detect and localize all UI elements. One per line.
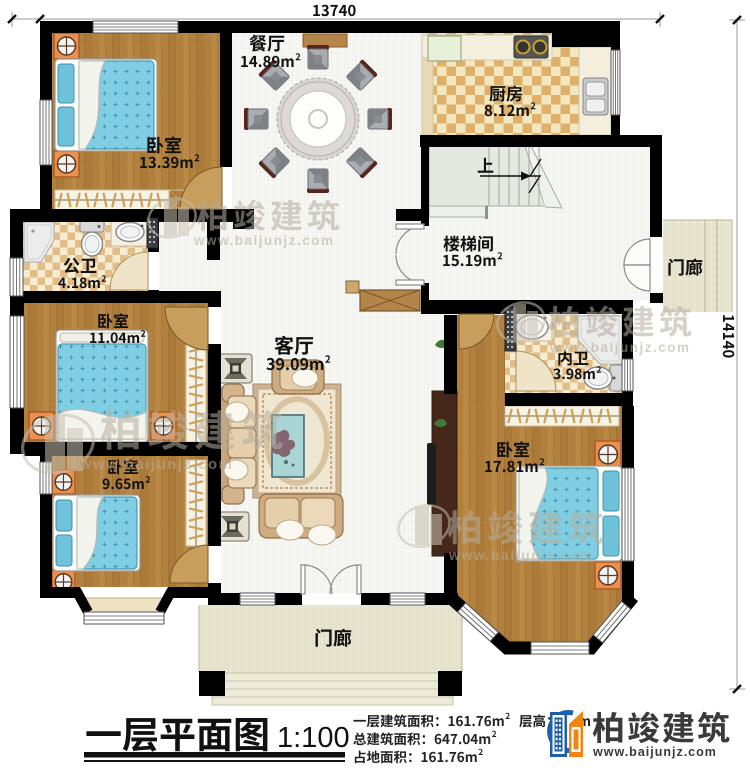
svg-text:www.baijunjz.com: www.baijunjz.com [549, 340, 691, 355]
svg-text:1:100: 1:100 [277, 722, 350, 754]
svg-text:www.baijunjz.com: www.baijunjz.com [592, 745, 717, 759]
svg-text:www.baijunjz.com: www.baijunjz.com [79, 456, 233, 473]
svg-text:www.baijunjz.com: www.baijunjz.com [448, 547, 594, 563]
svg-text:www.baijunjz.com: www.baijunjz.com [193, 233, 335, 248]
